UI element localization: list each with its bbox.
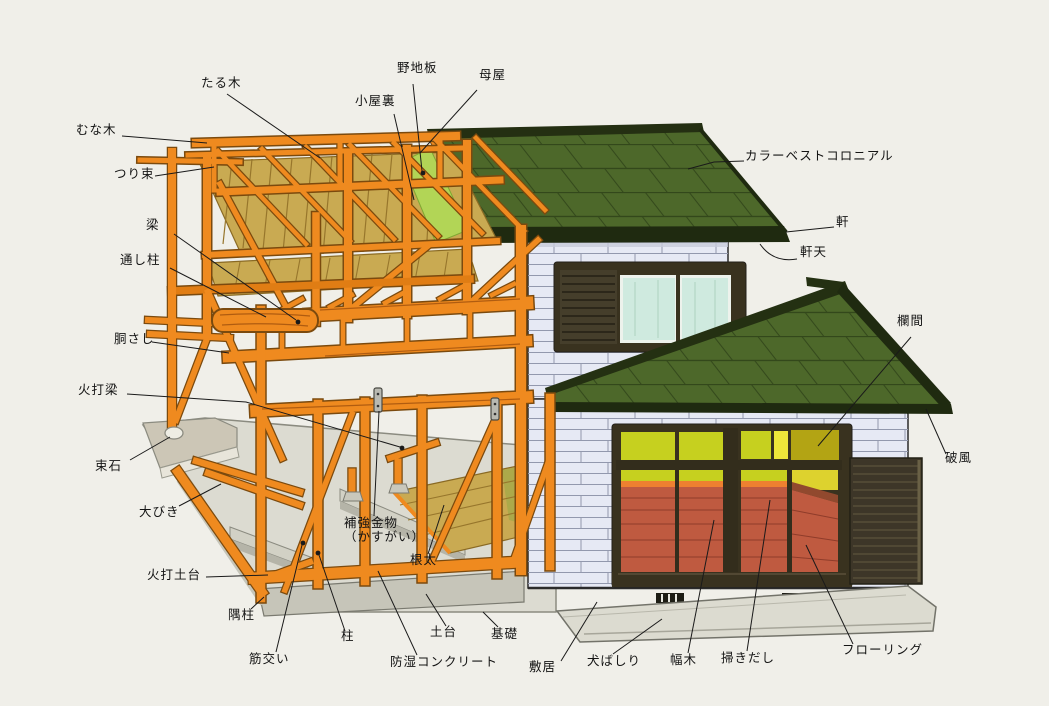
label-nojiita: 野地板 [397,61,438,75]
label-hiuchidodai: 火打土台 [147,568,201,582]
lower-eave-board [548,402,953,414]
label-colorbest: カラーベストコロニアル [745,149,894,163]
label-shikii: 敷居 [529,660,556,674]
label-hakidashi: 掃きだし [721,651,775,665]
label-koyaura: 小屋裏 [355,94,396,108]
label-neda: 根太 [410,553,437,567]
label-hashira: 柱 [341,629,355,643]
house-structure-diagram: むな木 たる木 小屋裏 野地板 母屋 つり束 カラーベストコロニアル 軒 軒天 … [0,0,1049,706]
label-tsukaishi: 束石 [95,459,122,473]
label-oobiki: 大びき [139,505,180,519]
label-hokyokanamono: 補強金物 （かすがい） [344,516,425,544]
label-munagi: むな木 [76,123,117,137]
label-flooring: フローリング [842,643,923,657]
shutter-box-2f [560,270,617,344]
label-tooshibashira: 通し柱 [120,253,161,267]
label-hiuchibari: 火打梁 [78,383,119,397]
label-hafu: 破風 [945,451,972,465]
first-floor-window [612,424,852,587]
label-taruki: たる木 [201,76,242,90]
label-habaki: 幅木 [670,653,697,667]
label-sujikai: 筋交い [249,652,290,666]
label-noki: 軒 [836,215,850,229]
label-sumibashira: 隅柱 [228,608,255,622]
label-tsurizuka: つり束 [114,167,155,181]
label-inubashiri: 犬ばしり [587,654,641,668]
label-moya: 母屋 [479,68,506,82]
label-hari: 梁 [146,218,160,232]
label-nokiten: 軒天 [800,245,827,259]
label-dousashi: 胴さし [114,332,155,346]
shutter-box-1f [850,458,922,584]
label-kiso: 基礎 [491,627,518,641]
label-dodai: 土台 [430,625,457,639]
label-boshitsucon: 防湿コンクリート [390,655,498,669]
label-ranma: 欄間 [897,314,924,328]
foundation-stone [165,427,183,439]
log-beam [212,309,318,332]
diagram-illustration [0,0,1049,706]
